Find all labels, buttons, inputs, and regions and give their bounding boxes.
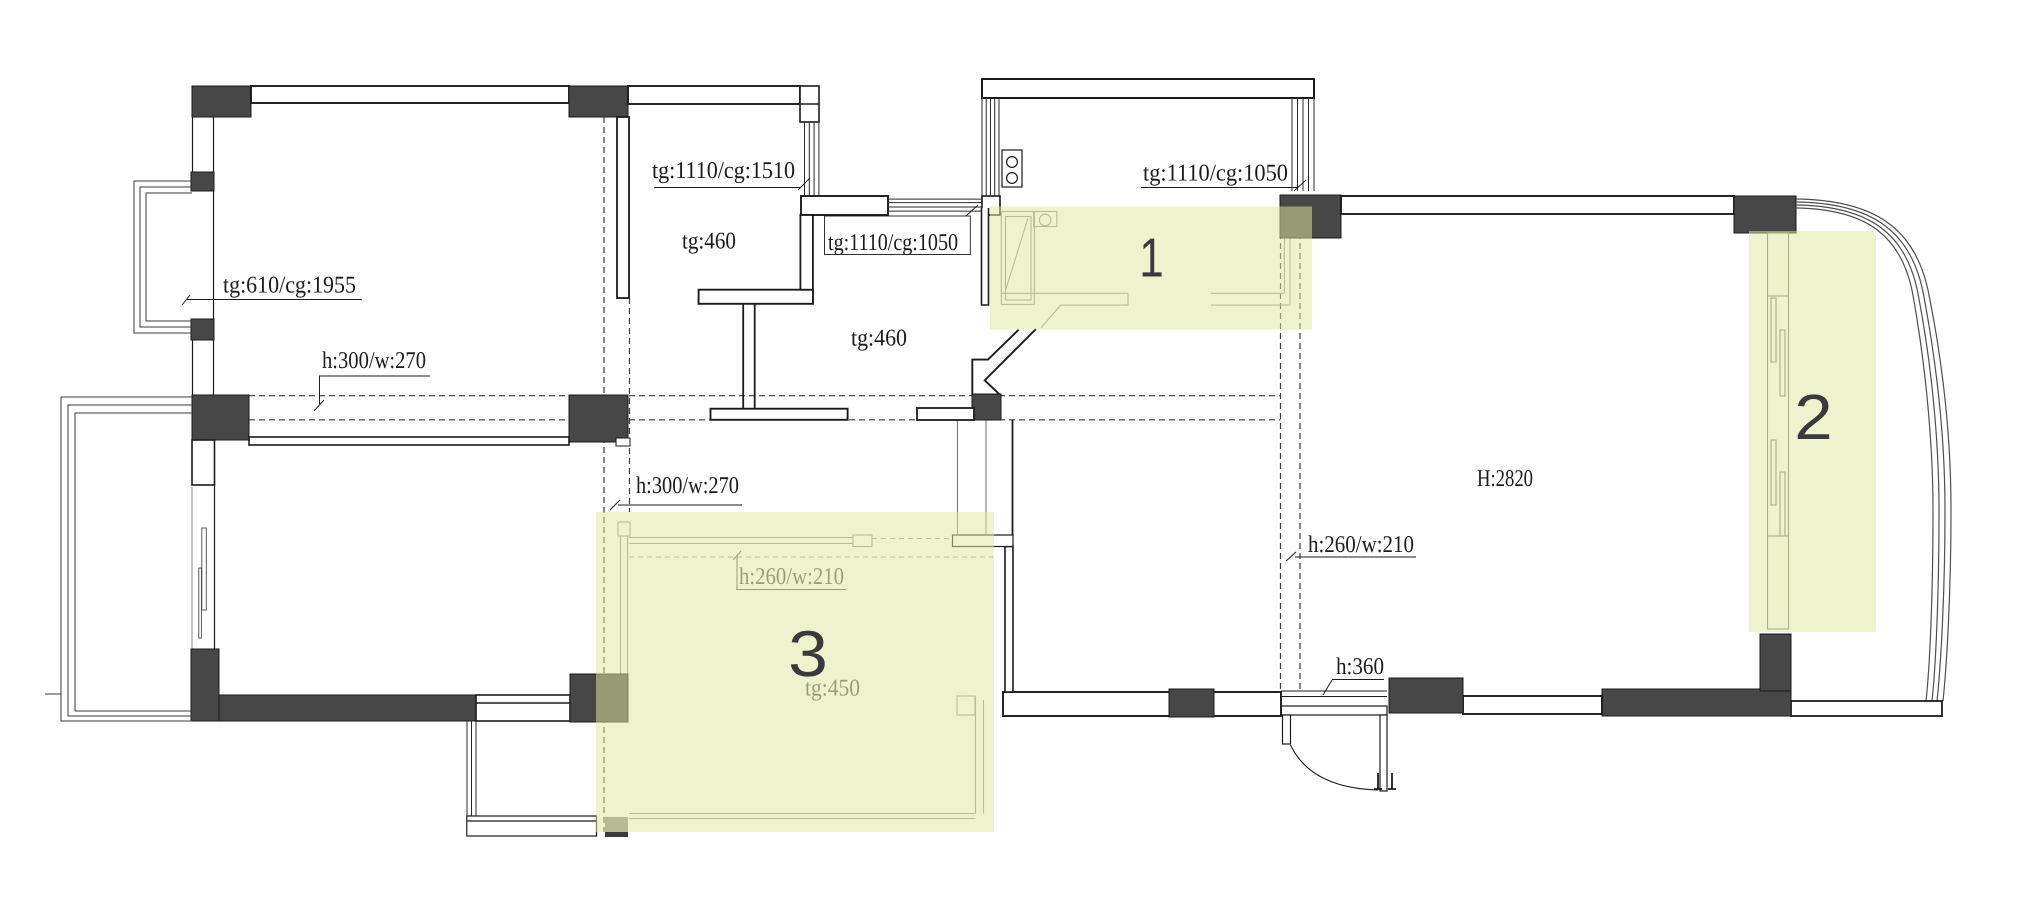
svg-text:3: 3 xyxy=(788,617,828,690)
svg-text:1: 1 xyxy=(1139,227,1163,289)
svg-text:2: 2 xyxy=(1794,381,1832,453)
svg-text:tg:1110/cg:1050: tg:1110/cg:1050 xyxy=(828,230,958,256)
svg-text:tg:1110/cg:1510: tg:1110/cg:1510 xyxy=(652,158,795,184)
svg-text:h:300/w:270: h:300/w:270 xyxy=(322,348,426,374)
svg-text:tg:1110/cg:1050: tg:1110/cg:1050 xyxy=(1143,161,1288,187)
svg-text:tg:460: tg:460 xyxy=(682,229,736,255)
svg-text:h:260/w:210: h:260/w:210 xyxy=(1308,532,1414,558)
svg-text:tg:610/cg:1955: tg:610/cg:1955 xyxy=(223,273,356,299)
svg-text:tg:460: tg:460 xyxy=(851,326,907,352)
svg-text:h:300/w:270: h:300/w:270 xyxy=(636,473,739,499)
svg-text:H:2820: H:2820 xyxy=(1477,466,1533,492)
svg-text:h:360: h:360 xyxy=(1336,654,1384,680)
